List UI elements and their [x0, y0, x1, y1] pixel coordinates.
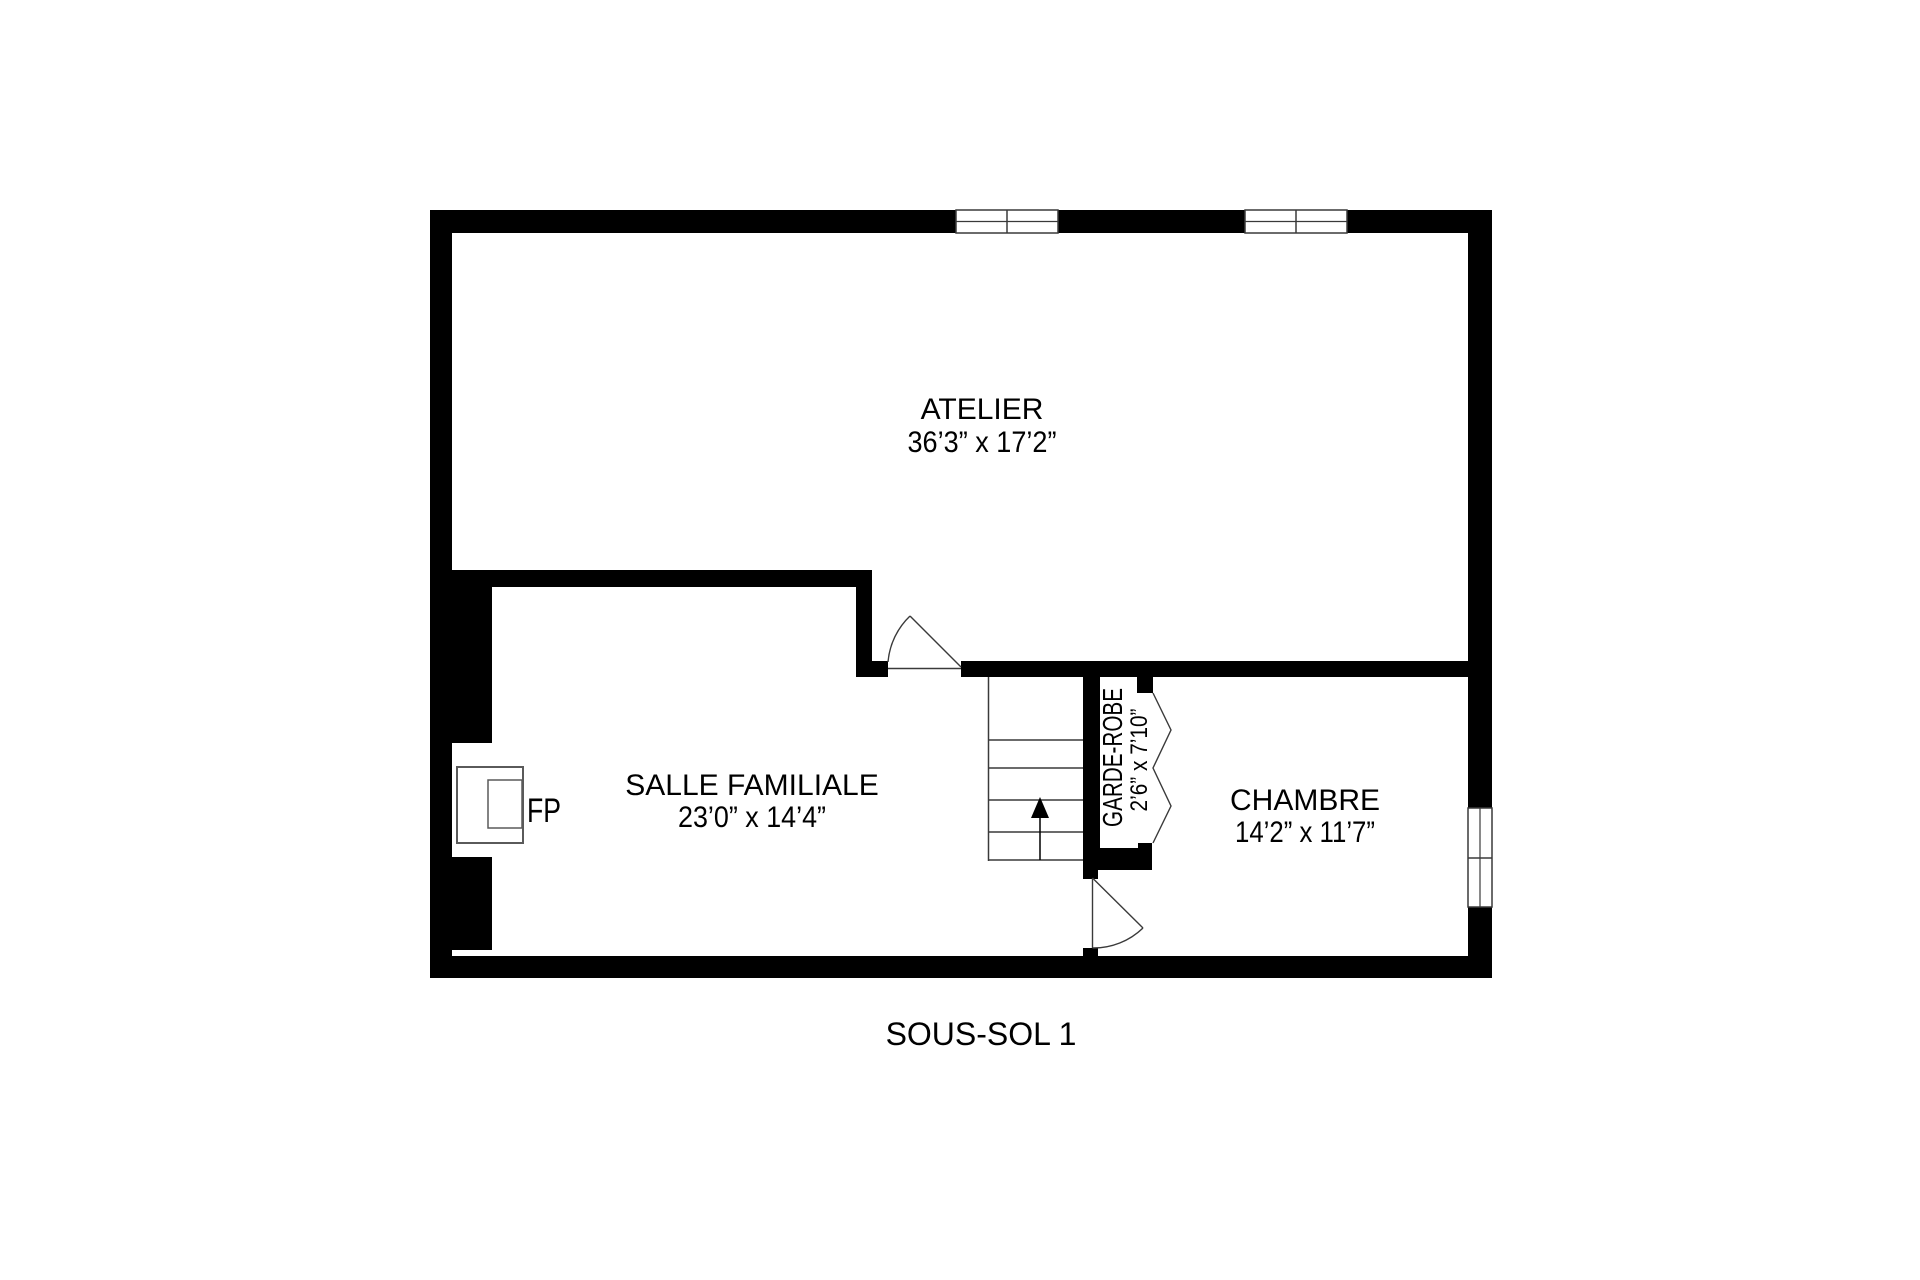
swing-door-atelier-icon: [888, 616, 961, 669]
atelier-dims: 36’3” x 17’2”: [908, 426, 1057, 459]
top-window-right-icon: [1245, 210, 1347, 233]
fireplace: FP: [457, 767, 561, 843]
interior-walls: [430, 570, 1468, 957]
fireplace-inner-box: [488, 780, 522, 828]
right-wall-window-icon: [1468, 808, 1492, 907]
wall-jog-foot: [856, 661, 888, 677]
chambre-top-wall: [961, 661, 1468, 677]
top-window-left-icon: [956, 210, 1058, 233]
chambre-door-bottom-jamb: [1083, 948, 1098, 957]
page-title: SOUS-SOL 1: [886, 1016, 1077, 1052]
floor-plan-page: FP ATELIER 36’3” x 17’2” SALLE FAMILIALE…: [0, 0, 1920, 1280]
salle-familiale-dims: 23’0” x 14’4”: [678, 801, 826, 834]
room-labels: ATELIER 36’3” x 17’2” SALLE FAMILIALE 23…: [625, 393, 1380, 849]
floor-plan-drawing: FP ATELIER 36’3” x 17’2” SALLE FAMILIALE…: [0, 0, 1920, 1280]
bottom-wall: [430, 956, 1492, 978]
stairs: [988, 677, 1083, 861]
fireplace-label: FP: [527, 792, 561, 830]
garde-robe-name: GARDE-ROBE: [1097, 688, 1128, 827]
atelier-salle-wall: [430, 570, 872, 587]
left-wall-thick-lower: [430, 857, 492, 950]
garde-robe-dims: 2’6” x 7’10”: [1126, 709, 1153, 812]
chambre-name: CHAMBRE: [1230, 784, 1380, 817]
chambre-door-hinge-jamb: [1083, 870, 1098, 879]
chambre-dims: 14’2” x 11’7”: [1235, 816, 1375, 849]
bifold-bottom-jamb: [1138, 843, 1152, 870]
left-wall-thick-upper: [430, 570, 492, 743]
salle-familiale-name: SALLE FAMILIALE: [625, 769, 878, 802]
swing-door-chambre-icon: [1093, 878, 1144, 948]
outer-walls: [430, 210, 1492, 978]
wall-jog: [856, 570, 872, 677]
atelier-name: ATELIER: [921, 393, 1044, 426]
bifold-door-icon: [1153, 693, 1171, 843]
bifold-top-jamb: [1137, 661, 1153, 693]
windows: [956, 210, 1492, 907]
